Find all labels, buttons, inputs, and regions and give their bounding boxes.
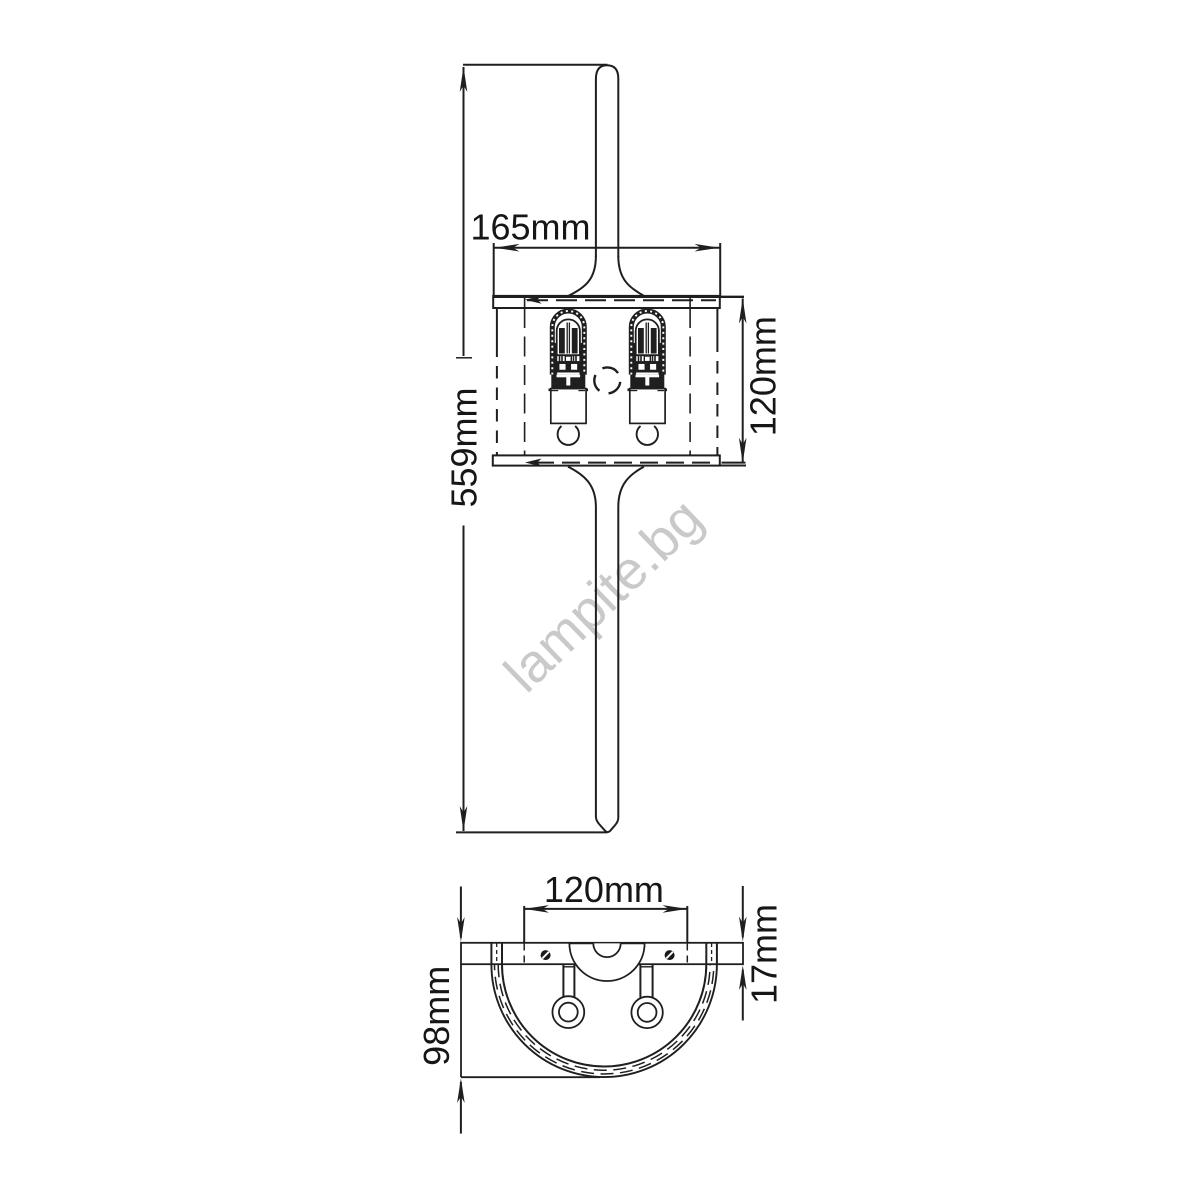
svg-text:165mm: 165mm — [470, 207, 590, 248]
svg-text:120mm: 120mm — [544, 869, 664, 910]
svg-text:559mm: 559mm — [444, 387, 485, 507]
svg-text:120mm: 120mm — [743, 316, 784, 436]
svg-text:98mm: 98mm — [416, 966, 457, 1066]
svg-text:17mm: 17mm — [744, 904, 785, 1004]
